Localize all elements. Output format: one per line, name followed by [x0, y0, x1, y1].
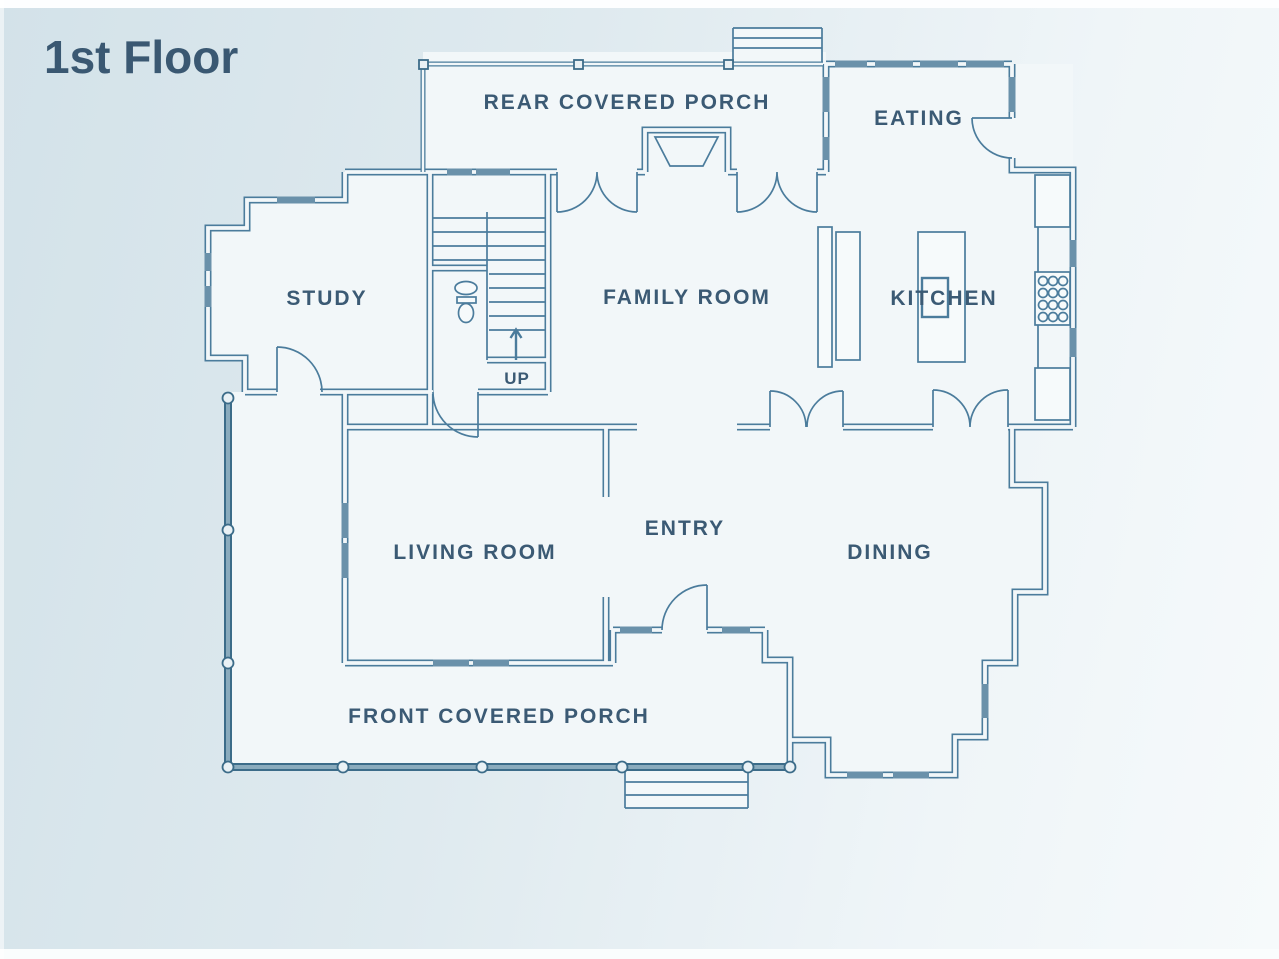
room-label-eating: EATING	[874, 107, 964, 130]
kitchen-counter-divider	[818, 227, 832, 367]
room-label-kitchen: KITCHEN	[890, 287, 997, 310]
sink-icon	[455, 282, 477, 295]
refrigerator-icon	[1035, 175, 1070, 227]
porch-post	[724, 60, 733, 69]
room-label-dining: DINING	[847, 541, 933, 564]
porch-post	[617, 762, 628, 773]
room-label-living-room: LIVING ROOM	[393, 541, 556, 564]
floor-plan-page: 1st Floor	[0, 0, 1279, 959]
room-label-study: STUDY	[286, 287, 367, 310]
room-label-front-porch: FRONT COVERED PORCH	[348, 705, 650, 728]
porch-post	[574, 60, 583, 69]
porch-post	[223, 525, 234, 536]
floor-plan-svg: REAR COVERED PORCH EATING STUDY FAMILY R…	[0, 0, 1279, 959]
toilet-tank-icon	[457, 297, 476, 303]
porch-post	[223, 762, 234, 773]
kitchen-counter-divider	[836, 232, 860, 360]
toilet-icon	[459, 304, 474, 323]
porch-post	[223, 658, 234, 669]
porch-post	[223, 393, 234, 404]
appliance-icon	[1035, 368, 1070, 420]
room-floor-fills	[208, 28, 1073, 808]
porch-post	[338, 762, 349, 773]
room-label-rear-porch: REAR COVERED PORCH	[484, 91, 771, 114]
stairs-up-label: UP	[504, 369, 530, 388]
room-label-entry: ENTRY	[645, 517, 725, 540]
porch-post	[419, 60, 428, 69]
cooktop-icon	[1035, 272, 1070, 325]
porch-post	[785, 762, 796, 773]
room-label-family-room: FAMILY ROOM	[603, 286, 771, 309]
porch-post	[743, 762, 754, 773]
porch-post	[477, 762, 488, 773]
powder-room-fixtures	[455, 282, 477, 323]
